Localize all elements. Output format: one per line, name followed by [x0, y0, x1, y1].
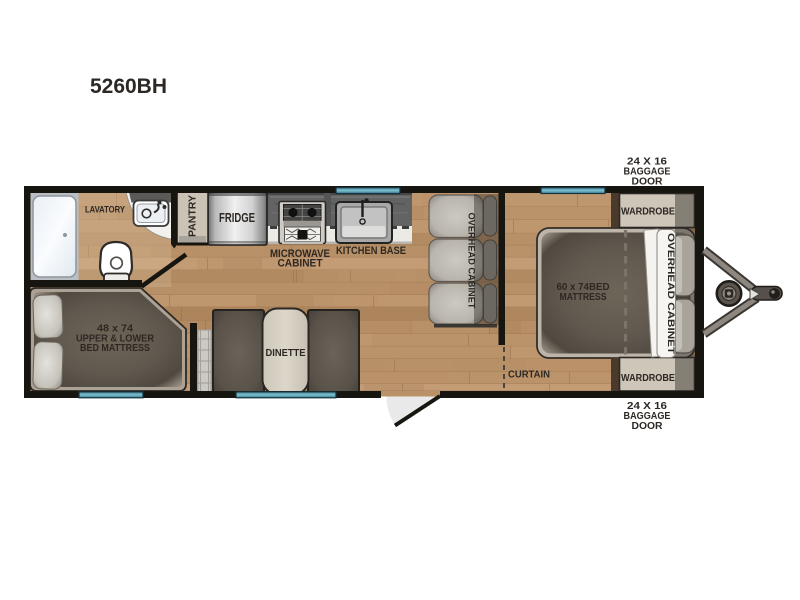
svg-text:BED MATTRESS: BED MATTRESS: [80, 342, 150, 354]
svg-text:CABINET: CABINET: [278, 258, 323, 270]
svg-text:KITCHEN BASE: KITCHEN BASE: [336, 245, 406, 257]
svg-text:MATTRESS: MATTRESS: [560, 291, 607, 303]
svg-text:OVERHEAD CABINET: OVERHEAD CABINET: [466, 213, 477, 309]
svg-text:PANTRY: PANTRY: [188, 195, 199, 237]
svg-text:WARDROBE: WARDROBE: [621, 207, 675, 218]
svg-text:DOOR: DOOR: [632, 176, 663, 188]
svg-text:OVERHEAD CABINET: OVERHEAD CABINET: [665, 233, 676, 354]
svg-text:5260BH: 5260BH: [90, 75, 167, 98]
svg-text:DOOR: DOOR: [632, 420, 663, 432]
svg-text:FRIDGE: FRIDGE: [219, 210, 255, 225]
svg-text:WARDROBE: WARDROBE: [621, 373, 675, 384]
svg-text:LAVATORY: LAVATORY: [85, 205, 125, 215]
svg-text:DINETTE: DINETTE: [266, 347, 306, 359]
svg-text:CURTAIN: CURTAIN: [508, 369, 550, 381]
